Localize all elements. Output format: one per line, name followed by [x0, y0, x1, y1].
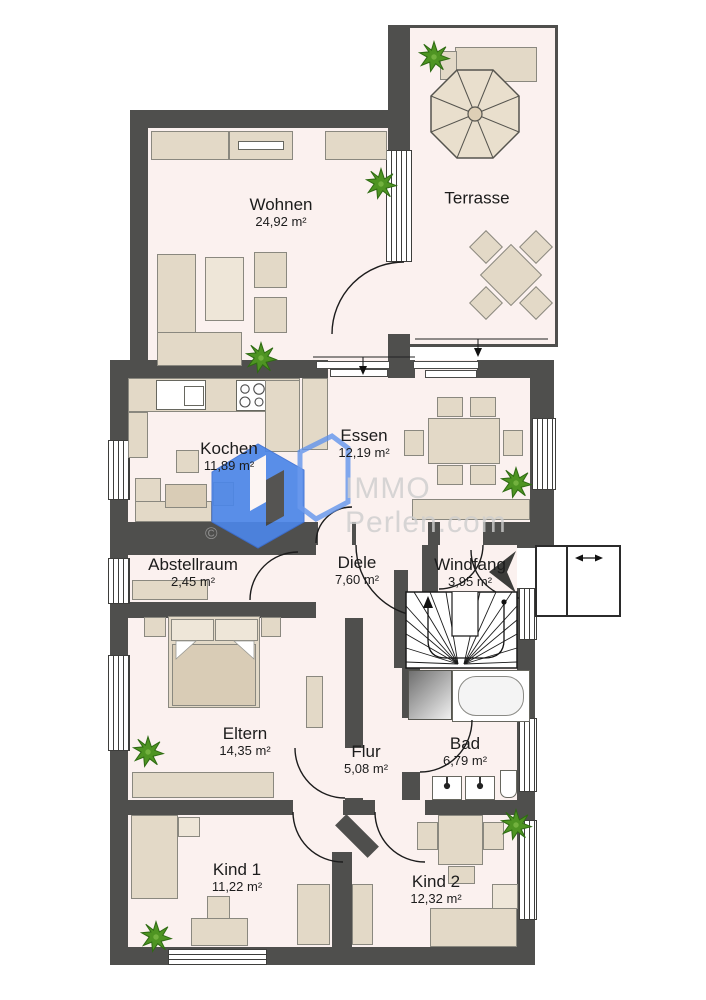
washbasin: [465, 776, 495, 800]
nightstand: [261, 617, 281, 637]
room-label-kind2: Kind 212,32 m²: [410, 872, 461, 906]
bed-kind1: [131, 815, 178, 899]
gap-entrance: [517, 548, 535, 588]
chair: [483, 822, 504, 850]
terrasse-edge-right: [555, 25, 558, 347]
kitchen-table: [165, 484, 207, 508]
wall-terrasse-join: [388, 25, 410, 110]
gap-wohnen-terrasse-door: [388, 260, 410, 334]
room-label-diele: Diele7,60 m²: [335, 553, 379, 587]
room-name: Bad: [443, 734, 487, 753]
room-label-eltern: Eltern14,35 m²: [219, 724, 270, 758]
room-area: 12,19 m²: [338, 445, 389, 460]
terrasse-edge-bottom: [410, 344, 558, 347]
room-name: Wohnen: [249, 195, 312, 214]
sink-basin: [184, 386, 204, 406]
chair: [213, 482, 234, 506]
pillow: [171, 619, 214, 641]
armchair: [254, 252, 287, 288]
toilet: [500, 770, 517, 798]
shower: [408, 670, 452, 720]
wall-stair-left: [394, 570, 408, 668]
room-name: Diele: [335, 553, 379, 572]
chair: [417, 822, 438, 850]
room-name: Essen: [338, 426, 389, 445]
room-name: Eltern: [219, 724, 270, 743]
watermark-copyright: ©: [205, 524, 218, 544]
slide-door-bar: [316, 361, 390, 369]
gap-abstell-door: [300, 555, 316, 602]
room-label-bad: Bad6,79 m²: [443, 734, 487, 768]
window-kind2: [519, 820, 537, 920]
watermark-brand-top: IMMO: [345, 472, 431, 506]
washbasin: [432, 776, 462, 800]
room-label-abstellraum: Abstellraum2,45 m²: [148, 555, 238, 589]
floor-plan: IMMO Perlen.com © Wohnen24,92 m²Terrasse…: [0, 0, 706, 1000]
lounge-chair: [440, 51, 457, 80]
chair: [437, 397, 463, 417]
room-label-essen: Essen12,19 m²: [338, 426, 389, 460]
chair: [176, 450, 199, 473]
pillow: [492, 884, 518, 909]
room-name: Kochen: [200, 439, 258, 458]
room-label-windfang: Windfang3,95 m²: [434, 555, 506, 589]
room-name: Kind 2: [410, 872, 461, 891]
wardrobe-kind1: [297, 884, 330, 945]
slide-door-bar: [413, 361, 479, 369]
room-name: Kind 1: [212, 860, 262, 879]
stove: [236, 380, 268, 411]
room-name: Abstellraum: [148, 555, 238, 574]
measure-arrow-icon: [474, 348, 482, 357]
window-kochen: [108, 440, 130, 500]
wardrobe-kind2: [352, 884, 373, 945]
bathtub-inner: [458, 676, 524, 716]
chair: [207, 896, 230, 919]
window-kind1: [168, 949, 267, 965]
watermark-brand-bottom: Perlen.com: [345, 506, 507, 540]
room-area: 14,35 m²: [219, 743, 270, 758]
chair: [437, 465, 463, 485]
cabinet-eltern: [306, 676, 323, 728]
room-name: Windfang: [434, 555, 506, 574]
room-area: 12,32 m²: [410, 891, 461, 906]
chair: [503, 430, 523, 456]
gap-kind1-door: [293, 800, 343, 815]
room-label-terrasse: Terrasse: [444, 189, 509, 208]
window-abstellraum: [108, 558, 130, 604]
room-area: 24,92 m²: [249, 214, 312, 229]
room-area: 7,60 m²: [335, 572, 379, 587]
sofa: [157, 332, 242, 366]
room-area: 2,45 m²: [148, 574, 238, 589]
room-area: 11,22 m²: [212, 879, 262, 894]
blanket: [172, 644, 256, 706]
kitchen-counter: [128, 412, 148, 458]
room-area: 3,95 m²: [434, 574, 506, 589]
wall-kids-divider: [336, 852, 352, 947]
room-area: 5,08 m²: [344, 761, 388, 776]
bed-kind2: [430, 908, 517, 947]
room-name: Flur: [344, 742, 388, 761]
kitchen-cabinet: [265, 380, 300, 452]
room-label-flur: Flur5,08 m²: [344, 742, 388, 776]
sideboard-wohnen: [325, 131, 387, 160]
entrance-platform: [535, 545, 621, 617]
nightstand: [144, 617, 166, 637]
pillow: [215, 619, 258, 641]
coffee-table: [205, 257, 244, 321]
tv-screen: [238, 141, 284, 150]
platform-divider: [566, 547, 568, 615]
window-wohnen-terrasse: [386, 150, 412, 262]
room-name: Terrasse: [444, 189, 509, 208]
room-area: 11,89 m²: [200, 458, 258, 473]
wall-abstell-stub: [300, 545, 316, 555]
slide-door-bar: [330, 369, 388, 377]
kitchen-cabinet: [302, 378, 328, 450]
lounge-chair: [455, 47, 537, 82]
table-kind2: [438, 815, 483, 865]
wardrobe-eltern: [132, 772, 274, 798]
pillow: [178, 817, 200, 837]
chair: [404, 430, 424, 456]
window-bad: [519, 718, 537, 792]
gap-bad-door: [402, 718, 420, 772]
chair: [470, 397, 496, 417]
room-label-kochen: Kochen11,89 m²: [200, 439, 258, 473]
floor-stair-area: [406, 592, 517, 668]
slide-door-bar: [425, 370, 477, 378]
gap-kind2-door: [375, 800, 425, 815]
room-label-wohnen: Wohnen24,92 m²: [249, 195, 312, 229]
sideboard-wohnen: [151, 131, 229, 160]
window-essen: [532, 418, 556, 490]
armchair: [254, 297, 287, 333]
desk: [191, 918, 248, 946]
room-label-kind1: Kind 111,22 m²: [212, 860, 262, 894]
window-eltern: [108, 655, 130, 751]
dining-table: [428, 418, 500, 464]
room-area: 6,79 m²: [443, 753, 487, 768]
chair: [470, 465, 496, 485]
